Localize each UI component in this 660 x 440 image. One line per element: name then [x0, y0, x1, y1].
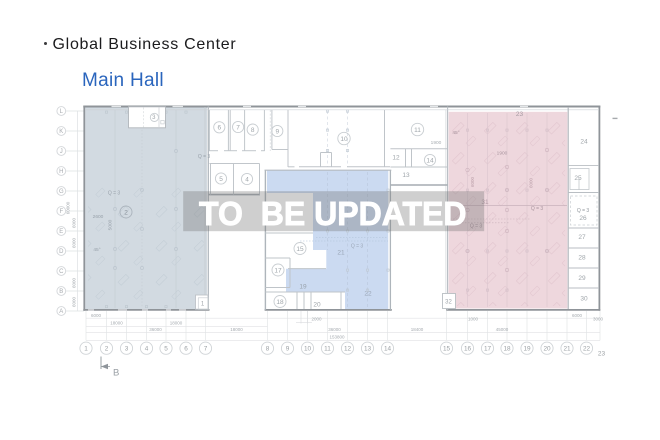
svg-text:L: L: [60, 109, 64, 115]
svg-text:24: 24: [580, 139, 588, 146]
svg-text:4: 4: [245, 176, 249, 183]
svg-text:16: 16: [464, 345, 472, 352]
svg-text:26: 26: [579, 215, 587, 222]
svg-text:13: 13: [364, 345, 372, 352]
svg-text:15: 15: [296, 246, 304, 253]
svg-text:8: 8: [266, 345, 270, 352]
svg-text:6: 6: [184, 345, 188, 352]
svg-text:30: 30: [580, 296, 588, 303]
svg-text:11: 11: [324, 345, 331, 352]
svg-text:18000: 18000: [170, 321, 183, 326]
svg-text:12: 12: [392, 155, 400, 162]
svg-text:Q = 3: Q = 3: [351, 244, 364, 250]
svg-text:C: C: [59, 269, 64, 275]
svg-text:23: 23: [516, 111, 524, 118]
svg-text:6000: 6000: [72, 277, 77, 288]
svg-text:B: B: [59, 289, 63, 295]
svg-text:25: 25: [574, 175, 582, 182]
svg-text:45°: 45°: [93, 247, 100, 253]
svg-text:H: H: [59, 169, 63, 175]
svg-text:45°: 45°: [452, 130, 459, 136]
svg-text:F: F: [59, 209, 63, 215]
svg-text:D: D: [59, 249, 64, 255]
svg-text:2: 2: [105, 345, 109, 352]
svg-text:5: 5: [164, 345, 168, 352]
svg-text:1900: 1900: [431, 140, 442, 146]
svg-text:18000: 18000: [230, 327, 243, 332]
svg-text:27: 27: [578, 234, 586, 241]
svg-text:8: 8: [251, 127, 255, 134]
svg-text:23: 23: [598, 351, 606, 358]
svg-text:20: 20: [313, 302, 321, 309]
svg-text:Q = 3: Q = 3: [531, 206, 544, 212]
svg-text:22: 22: [364, 291, 372, 298]
svg-text:32: 32: [445, 300, 452, 306]
svg-text:J: J: [60, 149, 63, 155]
svg-text:6000: 6000: [572, 313, 583, 318]
svg-text:11: 11: [414, 127, 421, 134]
svg-text:9: 9: [286, 345, 290, 352]
svg-text:Q = 3: Q = 3: [108, 191, 121, 197]
svg-text:1900: 1900: [497, 151, 508, 157]
svg-text:1: 1: [84, 345, 88, 352]
svg-text:E: E: [59, 229, 63, 235]
svg-text:14: 14: [384, 345, 392, 352]
svg-text:6000: 6000: [91, 313, 102, 318]
svg-text:15: 15: [443, 345, 451, 352]
svg-text:6: 6: [217, 125, 221, 132]
svg-text:4: 4: [145, 345, 149, 352]
svg-text:20: 20: [543, 345, 551, 352]
svg-text:9: 9: [275, 128, 279, 135]
svg-text:36000: 36000: [149, 327, 162, 332]
svg-text:7: 7: [204, 345, 208, 352]
svg-text:28: 28: [578, 255, 586, 262]
svg-text:5000: 5000: [108, 219, 114, 230]
svg-text:17: 17: [274, 268, 282, 275]
svg-text:153800: 153800: [329, 334, 345, 339]
svg-text:36000: 36000: [328, 327, 341, 332]
svg-text:19: 19: [523, 345, 531, 352]
svg-text:13: 13: [402, 172, 410, 179]
svg-text:21: 21: [563, 345, 571, 352]
svg-text:6000: 6000: [72, 296, 77, 307]
svg-text:10: 10: [304, 345, 312, 352]
svg-text:17: 17: [484, 345, 492, 352]
svg-text:45000: 45000: [496, 327, 509, 332]
svg-text:29: 29: [578, 275, 586, 282]
svg-text:Q = 3: Q = 3: [198, 154, 211, 160]
svg-text:B: B: [113, 368, 119, 379]
svg-text:3000: 3000: [593, 317, 604, 322]
svg-text:6000: 6000: [72, 217, 77, 228]
svg-text:21: 21: [337, 250, 345, 257]
svg-text:12: 12: [344, 345, 352, 352]
svg-text:18: 18: [503, 345, 511, 352]
svg-text:18: 18: [276, 299, 284, 306]
svg-text:Q = 3: Q = 3: [577, 208, 590, 214]
svg-text:2600: 2600: [93, 214, 104, 220]
svg-text:G: G: [59, 189, 64, 195]
svg-text:A: A: [59, 309, 63, 315]
svg-text:18000: 18000: [110, 321, 123, 326]
svg-text:2000: 2000: [311, 317, 322, 322]
svg-text:3: 3: [125, 345, 129, 352]
svg-text:5: 5: [219, 176, 223, 183]
svg-text:19: 19: [299, 284, 307, 291]
svg-text:7: 7: [236, 124, 240, 131]
svg-text:6000: 6000: [470, 176, 475, 187]
svg-text:TO BE UPDATED: TO BE UPDATED: [199, 195, 467, 232]
svg-text:6000: 6000: [529, 177, 534, 188]
svg-text:22: 22: [583, 345, 591, 352]
svg-text:10: 10: [340, 136, 348, 143]
svg-text:18400: 18400: [411, 327, 424, 332]
svg-text:6000: 6000: [72, 237, 77, 248]
svg-text:60000: 60000: [66, 201, 71, 214]
svg-text:2: 2: [124, 210, 128, 217]
svg-text:14: 14: [426, 157, 434, 164]
svg-text:K: K: [59, 129, 63, 135]
svg-text:1000: 1000: [468, 317, 479, 322]
